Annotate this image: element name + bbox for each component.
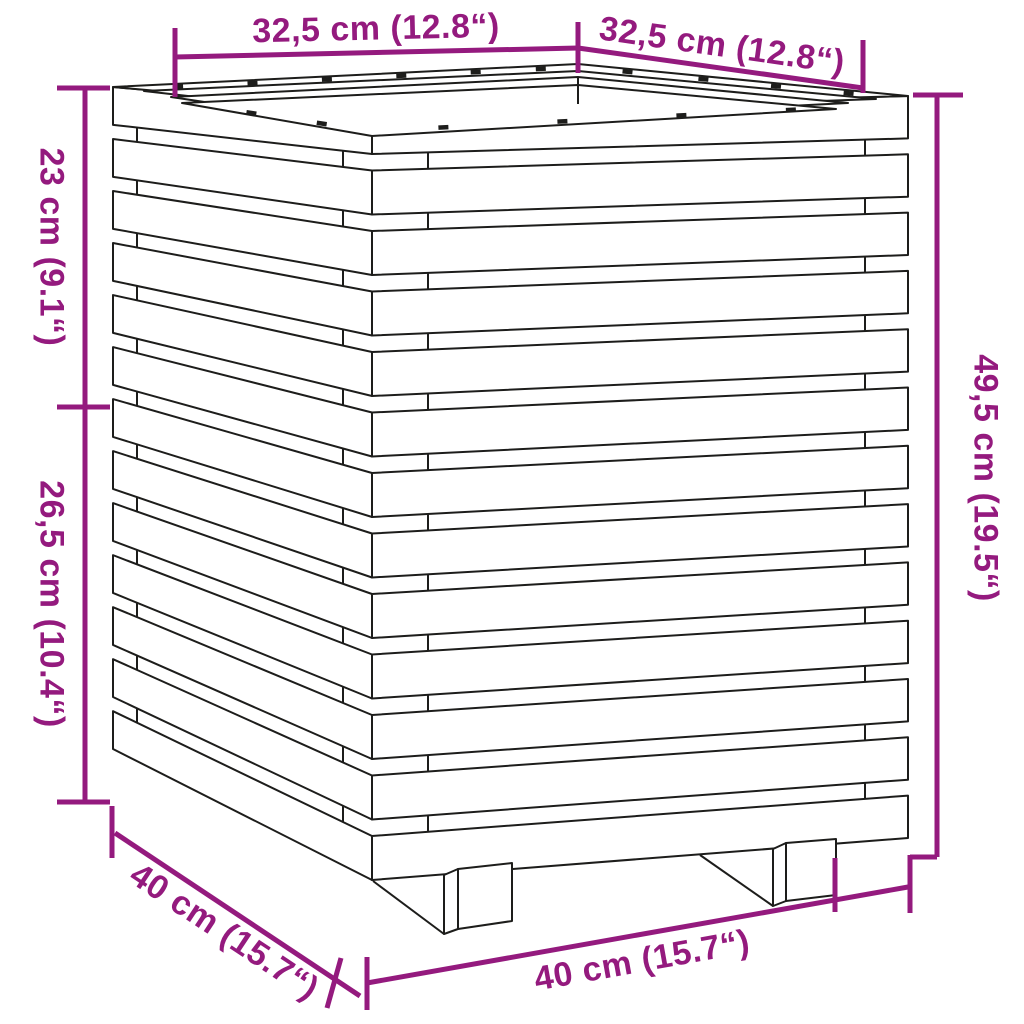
planter-dimension-diagram: 32,5 cm (12.8“) 32,5 cm (12.8“) 23 cm (9… bbox=[0, 0, 1024, 1024]
dimension-label-top-left-width: 32,5 cm (12.8“) bbox=[252, 7, 500, 52]
dimension-label-lower-left-height: 26,5 cm (10.4“) bbox=[32, 480, 71, 728]
dimension-label-right-height: 49,5 cm (19.5“) bbox=[966, 354, 1005, 602]
dimension-label-upper-left-height: 23 cm (9.1“) bbox=[32, 148, 71, 347]
